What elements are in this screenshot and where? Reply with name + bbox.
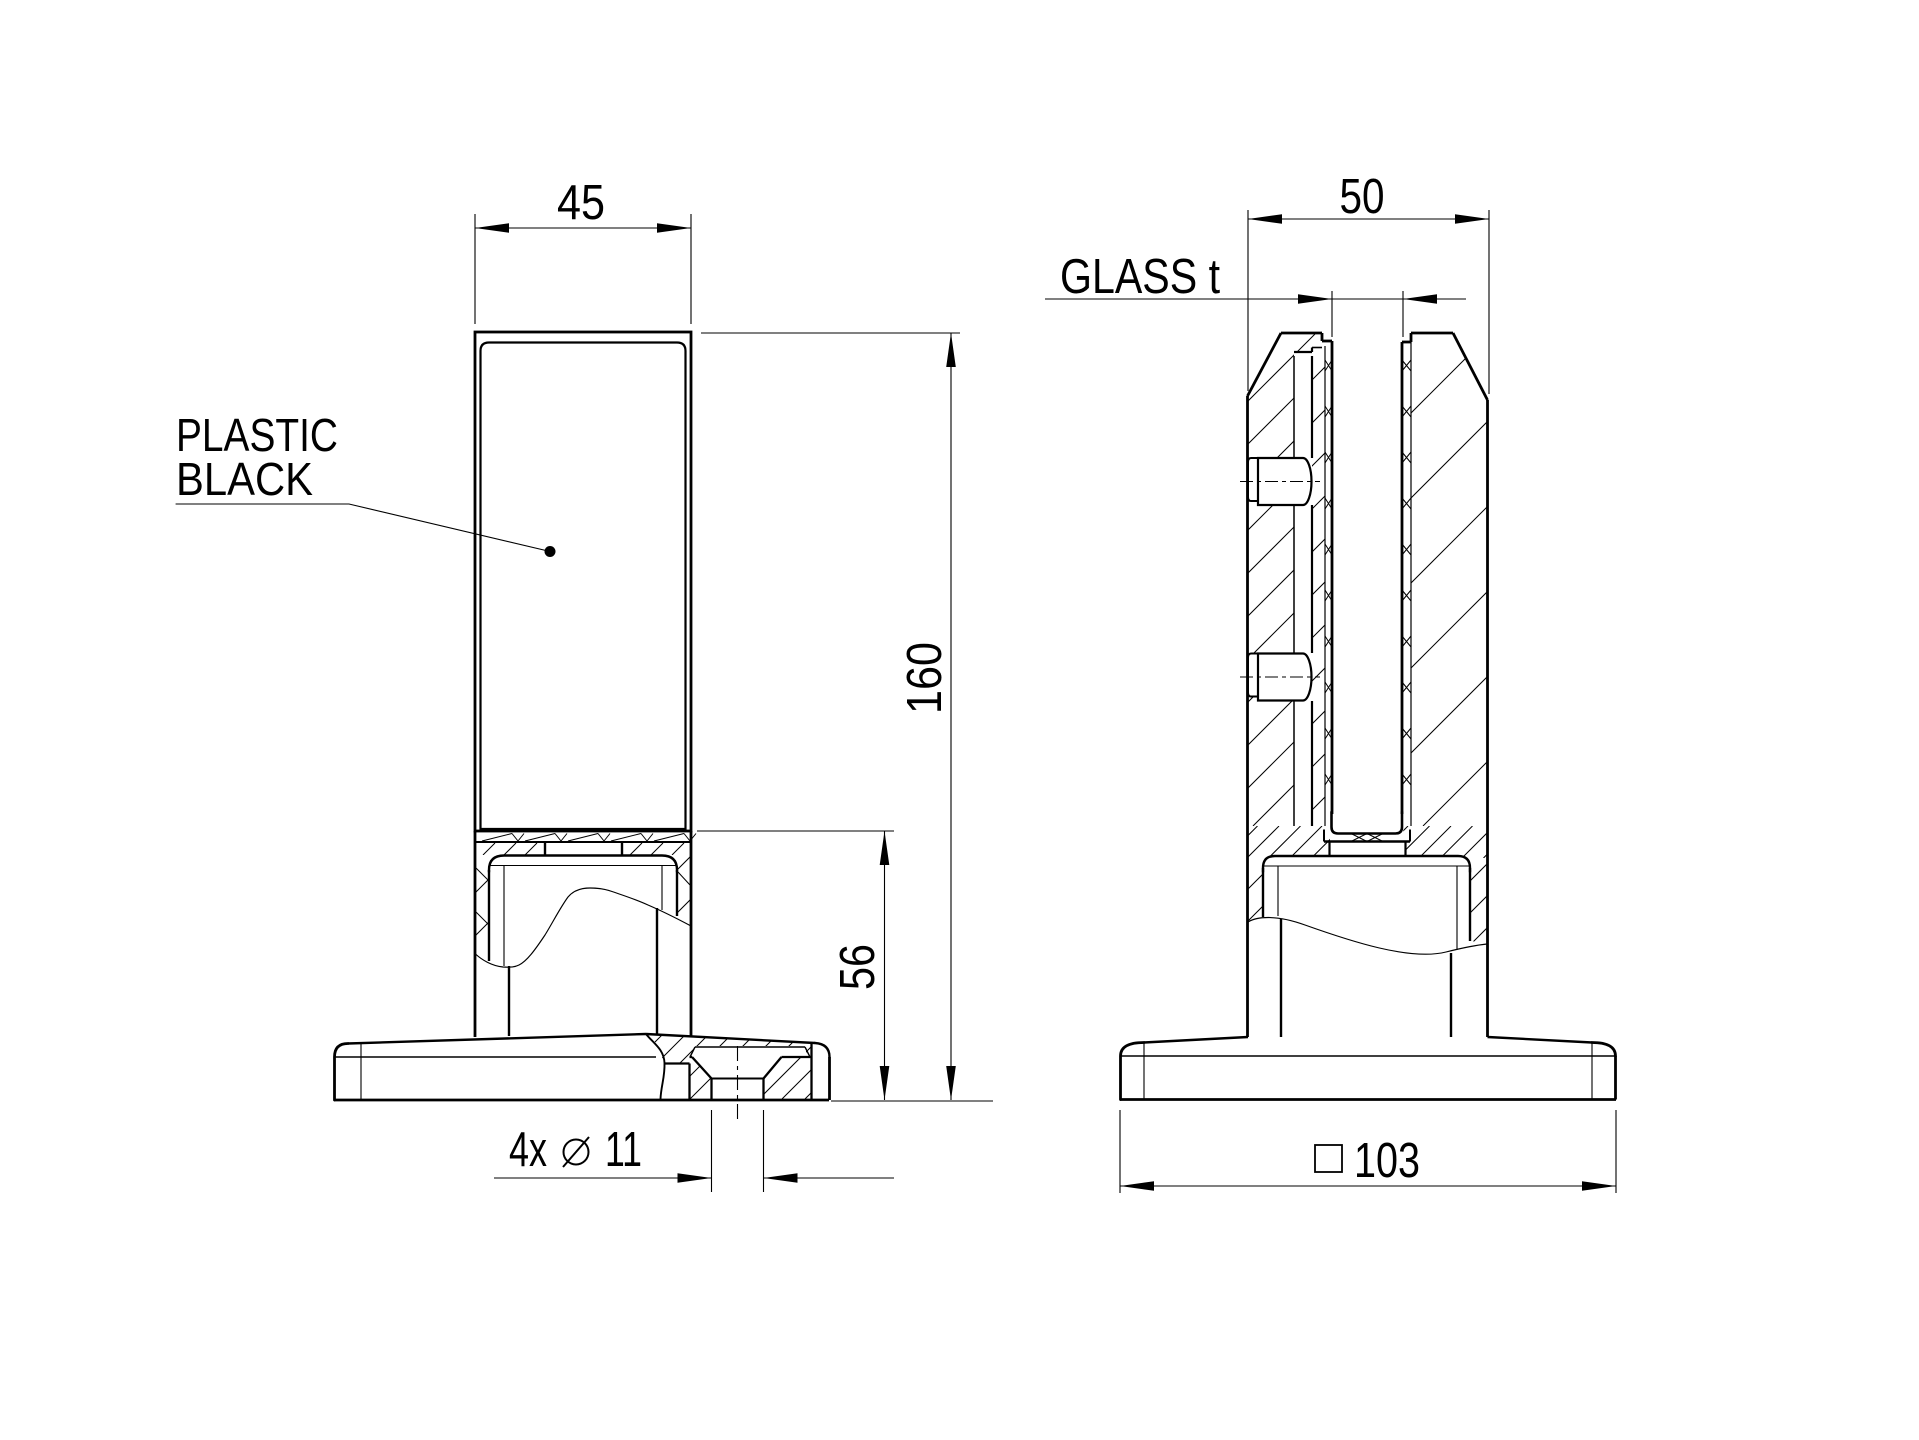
- svg-text:4x: 4x: [509, 1123, 547, 1177]
- svg-text:103: 103: [1354, 1134, 1420, 1188]
- svg-text:GLASS t: GLASS t: [1060, 250, 1220, 304]
- svg-text:11: 11: [605, 1123, 642, 1177]
- svg-text:160: 160: [898, 642, 952, 714]
- svg-text:45: 45: [557, 176, 605, 230]
- svg-text:50: 50: [1340, 170, 1385, 224]
- svg-text:BLACK: BLACK: [176, 453, 313, 505]
- svg-text:56: 56: [831, 944, 885, 990]
